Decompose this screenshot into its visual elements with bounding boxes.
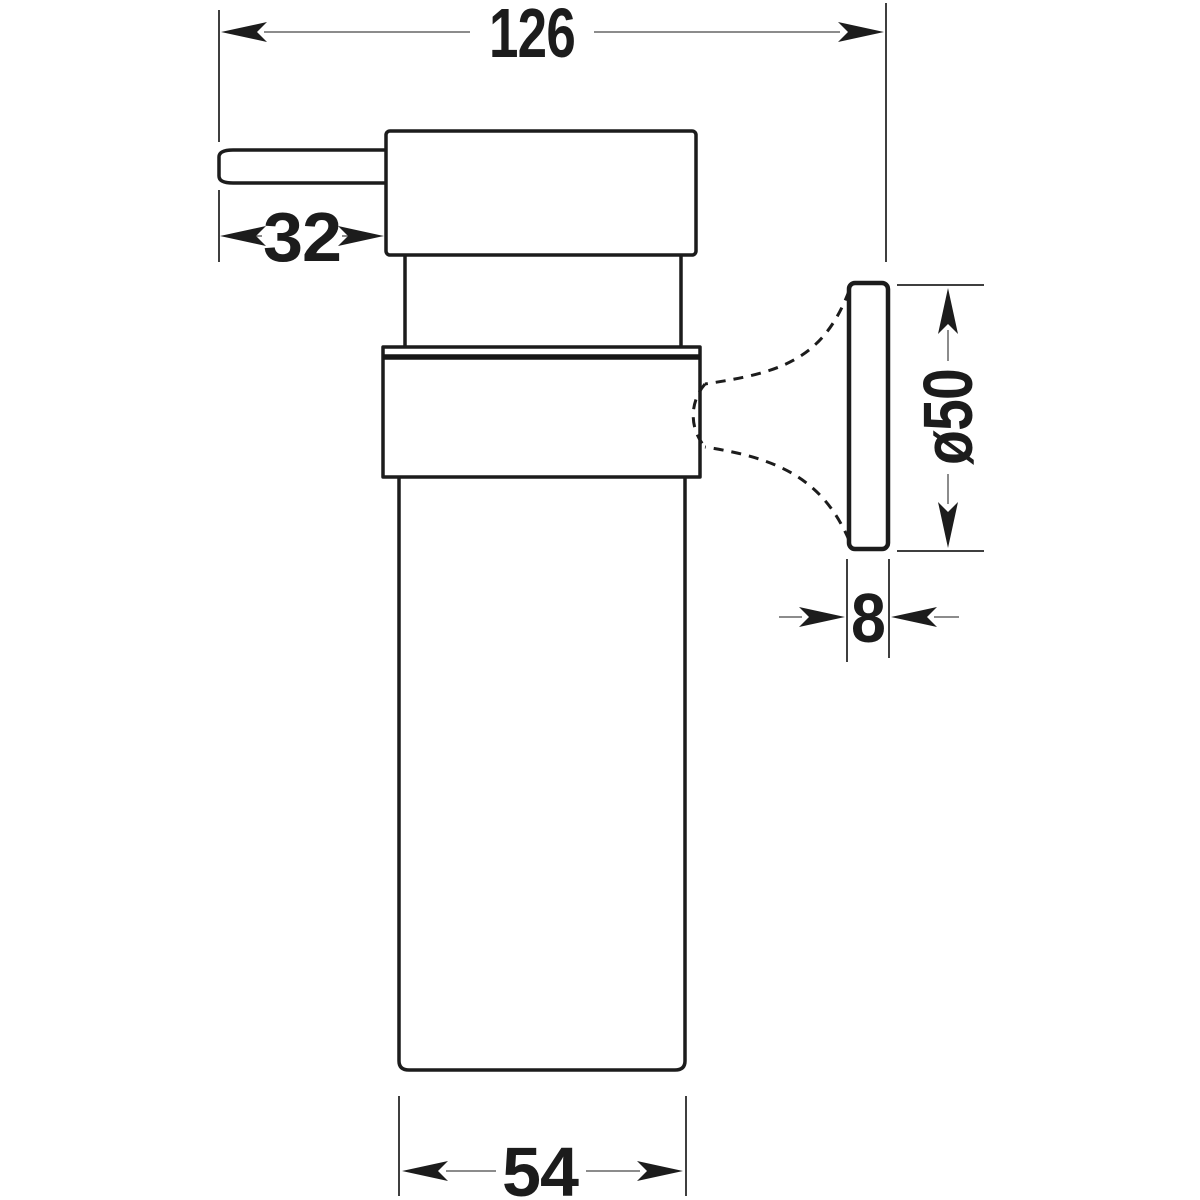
arrowhead-down (938, 502, 958, 548)
bracket-arm-top-edge (705, 291, 849, 384)
soap-dispenser-dimension-drawing: 126 32 ø50 8 (0, 0, 1200, 1200)
arrowhead-left (402, 1161, 448, 1181)
dimension-label-spout-projection: 32 (263, 198, 341, 276)
dimension-label-body-width: 54 (502, 1133, 579, 1200)
dimension-body-width: 54 (399, 1096, 686, 1200)
bracket-arm-hidden-edges (693, 291, 849, 540)
spout-tube (219, 150, 388, 183)
arrowhead-pointing-right (799, 607, 845, 627)
dimension-plate-thickness: 8 (779, 559, 959, 662)
pump-neck (405, 255, 681, 347)
arrowhead-right (637, 1161, 683, 1181)
technical-drawing-canvas: 126 32 ø50 8 (0, 0, 1200, 1200)
dimension-label-plate-diameter: ø50 (909, 369, 987, 465)
container-body (399, 477, 685, 1070)
holder-ring (383, 347, 700, 477)
arrowhead-pointing-left (891, 607, 937, 627)
dimension-plate-diameter: ø50 (897, 285, 987, 551)
dimension-label-plate-thickness: 8 (851, 579, 885, 657)
dimension-spout-projection: 32 (220, 198, 384, 276)
arrowhead-left (221, 22, 267, 42)
pump-head (386, 131, 696, 255)
arrowhead-right (838, 22, 884, 42)
dimension-label-overall-width: 126 (489, 0, 575, 72)
bracket-arm-bottom-edge (705, 447, 849, 540)
wall-mounting-plate (849, 283, 888, 549)
arrowhead-up (938, 288, 958, 334)
